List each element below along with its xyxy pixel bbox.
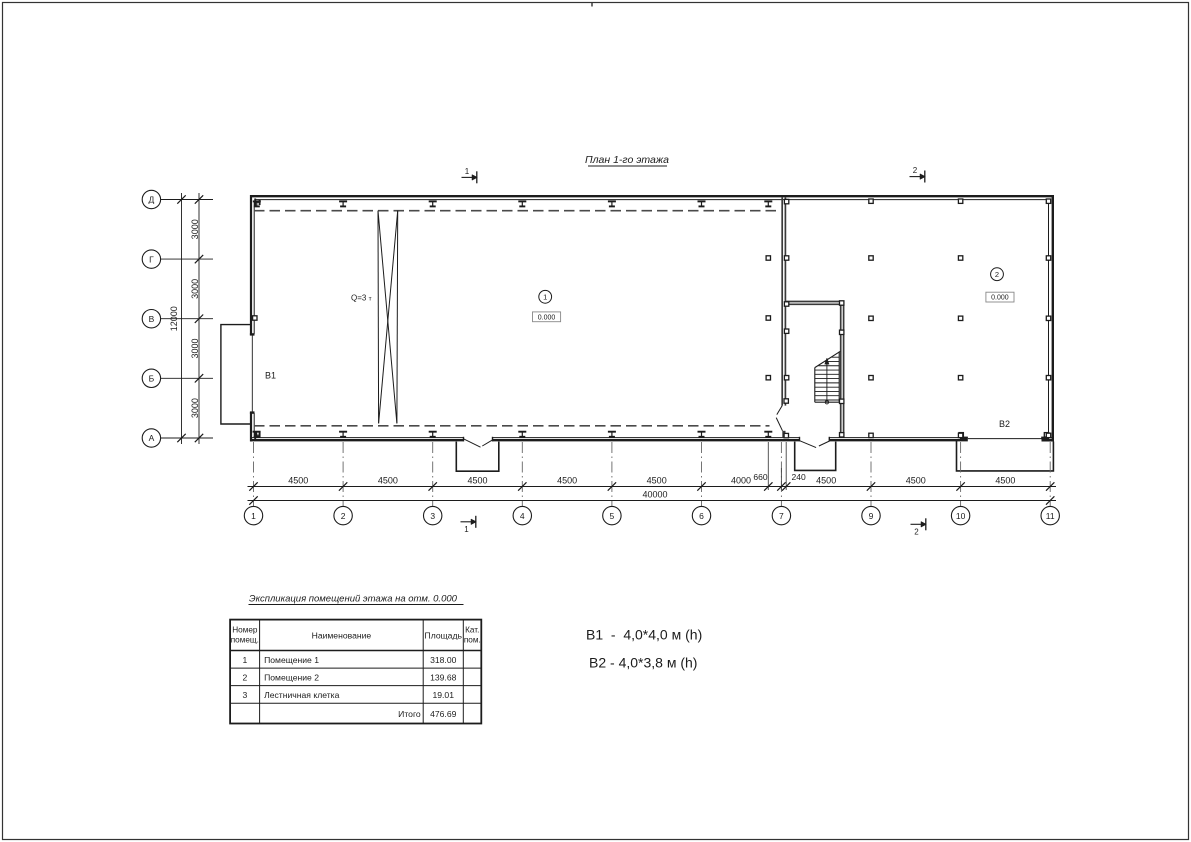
- svg-text:1: 1: [464, 525, 469, 534]
- svg-text:помещ.: помещ.: [231, 636, 259, 645]
- svg-text:Д: Д: [149, 195, 155, 205]
- svg-text:19.01: 19.01: [432, 690, 454, 700]
- svg-text:3000: 3000: [190, 219, 200, 239]
- svg-text:5: 5: [610, 511, 615, 521]
- svg-text:Помещение 1: Помещение 1: [264, 655, 319, 665]
- svg-text:Лестничная клетка: Лестничная клетка: [264, 690, 339, 700]
- svg-text:476.69: 476.69: [430, 709, 457, 719]
- svg-text:Б: Б: [149, 374, 155, 384]
- svg-text:План 1-го этажа: План 1-го этажа: [585, 154, 669, 166]
- svg-text:Наименование: Наименование: [312, 631, 372, 641]
- svg-text:3: 3: [242, 690, 247, 700]
- svg-text:Экспликация помещений этажа на: Экспликация помещений этажа на отм. 0.00…: [249, 594, 458, 605]
- svg-text:В: В: [149, 314, 155, 324]
- svg-text:В2: В2: [999, 419, 1010, 429]
- svg-text:Г: Г: [149, 254, 154, 264]
- svg-text:3000: 3000: [190, 398, 200, 418]
- svg-text:12000: 12000: [169, 306, 179, 331]
- svg-text:11: 11: [1046, 511, 1055, 521]
- svg-text:1: 1: [251, 511, 256, 521]
- svg-text:В1 - 4,0*4,0 м (h): В1 - 4,0*4,0 м (h): [586, 627, 702, 643]
- svg-text:4500: 4500: [288, 475, 308, 485]
- svg-text:4500: 4500: [816, 475, 836, 485]
- svg-text:пом.: пом.: [464, 636, 481, 645]
- svg-text:40000: 40000: [642, 490, 667, 500]
- svg-text:3000: 3000: [190, 279, 200, 299]
- svg-text:3: 3: [430, 511, 435, 521]
- svg-text:2: 2: [995, 270, 999, 279]
- svg-text:4500: 4500: [378, 475, 398, 485]
- svg-text:1: 1: [465, 167, 470, 176]
- svg-text:3000: 3000: [190, 338, 200, 358]
- svg-text:7: 7: [779, 511, 784, 521]
- svg-text:4500: 4500: [557, 475, 577, 485]
- svg-text:2: 2: [341, 511, 346, 521]
- svg-text:Площадь: Площадь: [425, 631, 463, 641]
- svg-text:А: А: [149, 433, 155, 443]
- svg-text:В1: В1: [265, 371, 276, 381]
- svg-text:4500: 4500: [467, 475, 487, 485]
- svg-text:9: 9: [869, 511, 874, 521]
- svg-text:240: 240: [792, 472, 806, 482]
- svg-text:4000: 4000: [731, 475, 751, 485]
- svg-text:2: 2: [242, 672, 247, 682]
- svg-text:10: 10: [956, 511, 966, 521]
- svg-text:Кат.: Кат.: [465, 626, 479, 635]
- svg-text:2: 2: [914, 527, 919, 536]
- svg-text:4: 4: [520, 511, 525, 521]
- svg-text:1: 1: [242, 655, 247, 665]
- svg-text:2: 2: [913, 166, 918, 175]
- svg-text:660: 660: [753, 472, 767, 482]
- svg-text:6: 6: [699, 511, 704, 521]
- svg-text:В2 - 4,0*3,8 м (h): В2 - 4,0*3,8 м (h): [589, 655, 697, 671]
- svg-text:139.68: 139.68: [430, 672, 457, 682]
- svg-text:Q=3 т: Q=3 т: [351, 294, 372, 303]
- svg-text:4500: 4500: [995, 475, 1015, 485]
- svg-text:Помещение 2: Помещение 2: [264, 672, 319, 682]
- svg-text:Итого: Итого: [398, 709, 421, 719]
- svg-text:1: 1: [543, 293, 547, 302]
- svg-text:4500: 4500: [647, 475, 667, 485]
- svg-text:0.000: 0.000: [538, 314, 556, 321]
- svg-text:4500: 4500: [906, 475, 926, 485]
- svg-text:318.00: 318.00: [430, 655, 457, 665]
- svg-text:0.000: 0.000: [991, 295, 1009, 302]
- svg-text:Номер: Номер: [232, 626, 258, 635]
